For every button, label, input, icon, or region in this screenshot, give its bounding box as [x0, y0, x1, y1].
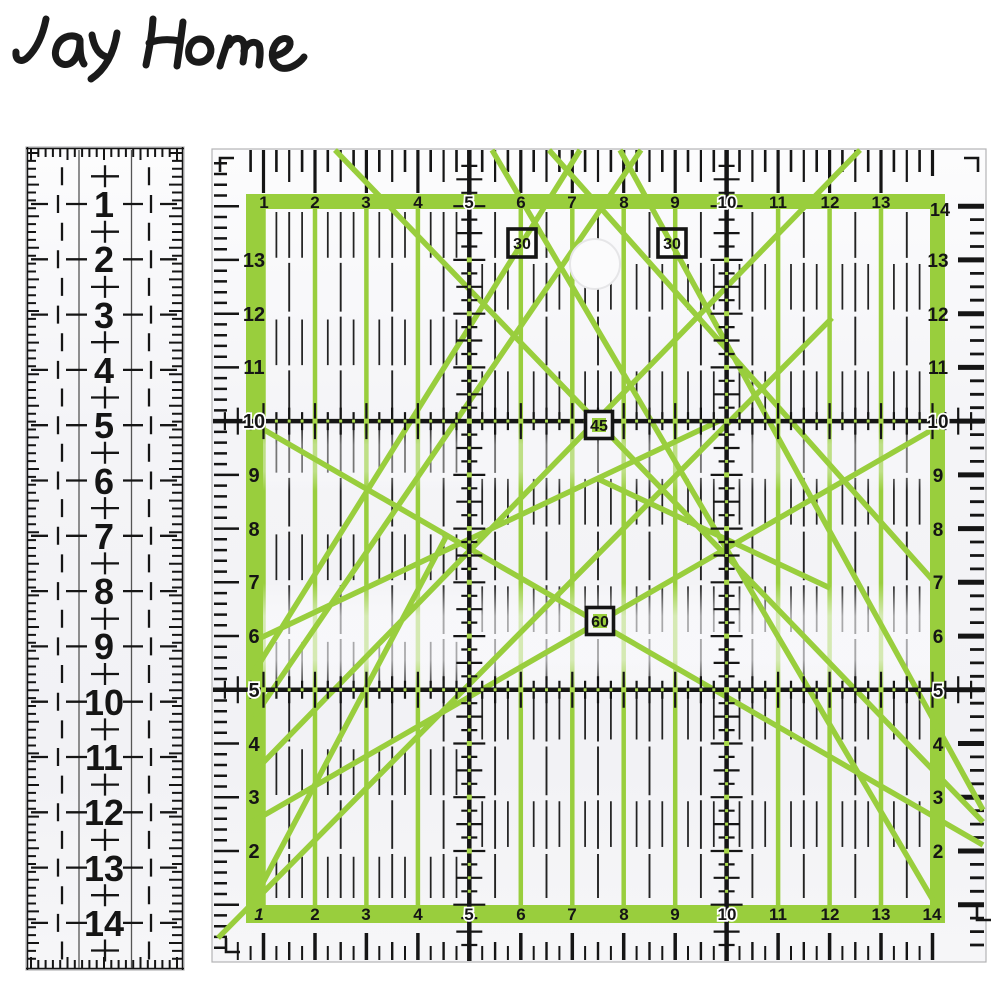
svg-text:6: 6 — [248, 626, 259, 648]
svg-text:7: 7 — [94, 516, 114, 557]
svg-text:4: 4 — [413, 193, 423, 212]
svg-text:14: 14 — [923, 905, 942, 924]
svg-text:7: 7 — [248, 572, 259, 594]
svg-text:5: 5 — [464, 193, 473, 212]
svg-text:3: 3 — [94, 295, 114, 336]
svg-text:14: 14 — [84, 903, 124, 944]
svg-text:3: 3 — [361, 193, 370, 212]
svg-text:3: 3 — [248, 787, 259, 809]
svg-text:5: 5 — [248, 680, 259, 702]
svg-text:2: 2 — [94, 239, 114, 280]
svg-text:11: 11 — [769, 193, 787, 212]
svg-text:9: 9 — [670, 905, 679, 924]
svg-text:8: 8 — [248, 519, 259, 541]
svg-text:11: 11 — [769, 905, 787, 924]
svg-text:8: 8 — [933, 520, 944, 541]
svg-text:11: 11 — [85, 737, 123, 778]
svg-text:10: 10 — [84, 682, 124, 723]
svg-text:13: 13 — [243, 250, 265, 272]
svg-text:11: 11 — [928, 358, 949, 379]
svg-text:60: 60 — [591, 614, 609, 631]
svg-text:6: 6 — [516, 905, 525, 924]
svg-text:2: 2 — [933, 842, 944, 863]
svg-text:9: 9 — [670, 193, 679, 212]
svg-text:3: 3 — [933, 788, 944, 809]
svg-text:5: 5 — [94, 405, 114, 446]
svg-text:30: 30 — [513, 236, 531, 253]
svg-text:10: 10 — [927, 412, 948, 433]
svg-text:3: 3 — [361, 905, 370, 924]
svg-text:5: 5 — [933, 681, 944, 702]
svg-text:7: 7 — [567, 193, 576, 212]
svg-text:8: 8 — [619, 905, 628, 924]
svg-text:1: 1 — [254, 905, 263, 924]
svg-text:7: 7 — [567, 905, 576, 924]
svg-text:12: 12 — [821, 193, 840, 212]
svg-text:12: 12 — [927, 305, 948, 326]
svg-text:14: 14 — [930, 200, 950, 220]
svg-text:10: 10 — [718, 905, 737, 924]
svg-text:5: 5 — [464, 905, 473, 924]
svg-text:2: 2 — [310, 193, 319, 212]
svg-text:2: 2 — [310, 905, 319, 924]
svg-text:8: 8 — [94, 571, 114, 612]
svg-text:11: 11 — [243, 357, 264, 379]
svg-text:45: 45 — [590, 418, 608, 435]
svg-text:4: 4 — [413, 905, 423, 924]
svg-text:2: 2 — [248, 841, 259, 863]
svg-text:13: 13 — [872, 193, 891, 212]
svg-text:6: 6 — [94, 461, 114, 502]
svg-text:12: 12 — [84, 792, 124, 833]
svg-text:12: 12 — [821, 905, 840, 924]
svg-text:12: 12 — [243, 304, 265, 326]
svg-text:10: 10 — [718, 193, 737, 212]
svg-text:1: 1 — [94, 184, 114, 225]
svg-text:4: 4 — [94, 350, 114, 391]
svg-text:4: 4 — [248, 734, 260, 756]
svg-text:9: 9 — [248, 465, 259, 487]
svg-text:1: 1 — [259, 193, 268, 212]
svg-text:6: 6 — [933, 627, 944, 648]
svg-text:13: 13 — [84, 848, 124, 889]
svg-text:13: 13 — [927, 251, 948, 272]
svg-text:7: 7 — [933, 573, 944, 594]
svg-text:8: 8 — [619, 193, 628, 212]
svg-text:9: 9 — [933, 466, 944, 487]
svg-text:9: 9 — [94, 626, 114, 667]
svg-text:30: 30 — [663, 236, 681, 253]
svg-text:4: 4 — [933, 735, 944, 756]
svg-text:13: 13 — [872, 905, 891, 924]
svg-text:6: 6 — [516, 193, 525, 212]
svg-text:10: 10 — [243, 411, 265, 433]
